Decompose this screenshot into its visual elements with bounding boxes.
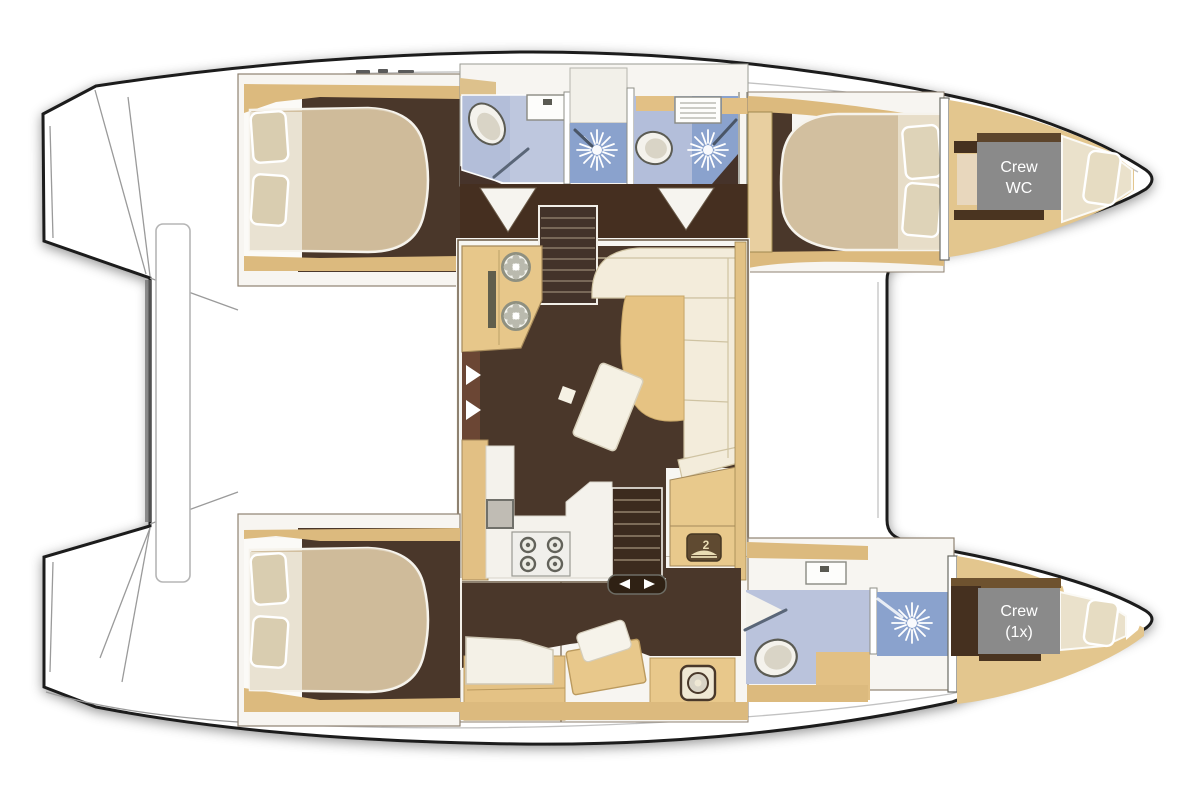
svg-text:WC: WC xyxy=(1006,180,1033,197)
svg-text:Crew: Crew xyxy=(1000,603,1038,620)
svg-text:(1x): (1x) xyxy=(1005,624,1033,641)
svg-text:2: 2 xyxy=(703,538,710,552)
svg-text:Crew: Crew xyxy=(1000,159,1038,176)
